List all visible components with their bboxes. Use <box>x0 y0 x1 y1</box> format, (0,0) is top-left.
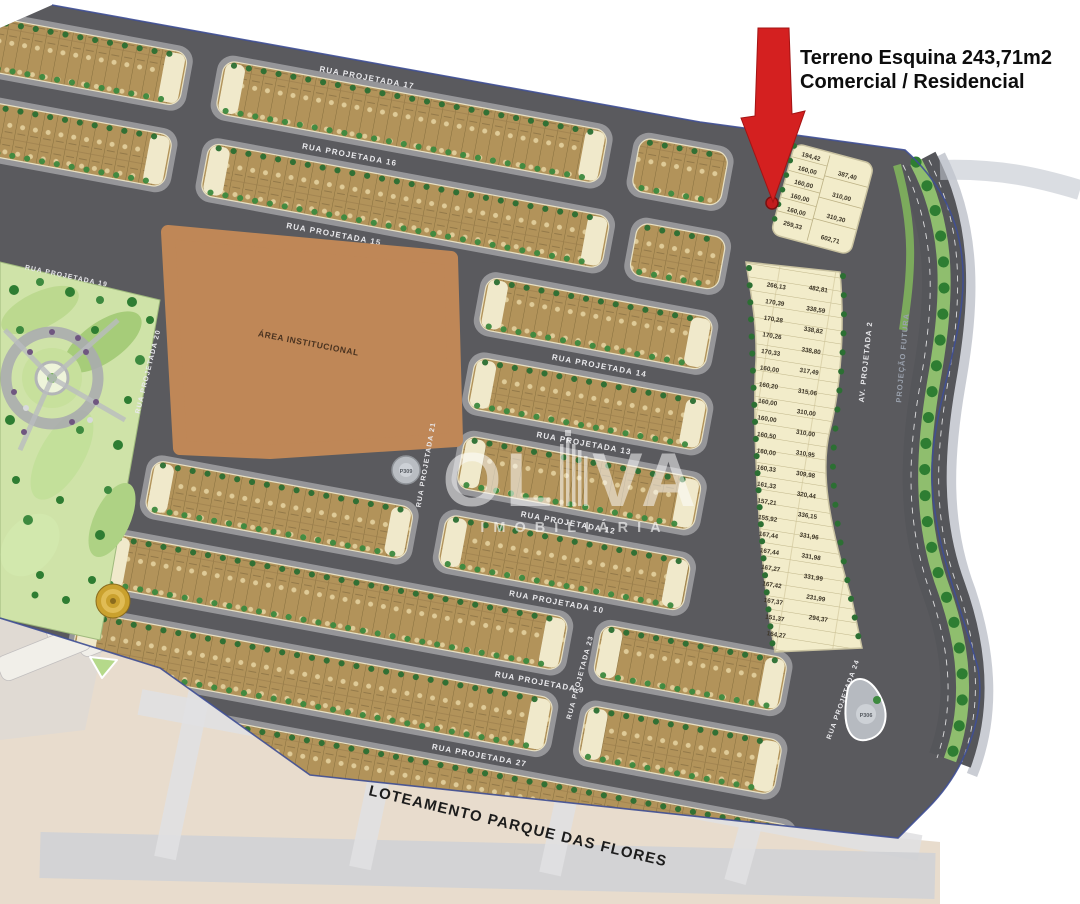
tree <box>56 496 64 504</box>
roundabout-p309-label: P309 <box>400 469 413 475</box>
tree <box>23 515 33 525</box>
tree <box>135 355 145 365</box>
tree <box>76 426 84 434</box>
annotation-line2: Comercial / Residencial <box>800 71 1025 93</box>
tree <box>5 415 15 425</box>
tree <box>93 399 99 405</box>
tree <box>36 278 44 286</box>
watermark-name-part2: VA <box>592 438 700 523</box>
tree <box>12 476 20 484</box>
tree <box>146 316 154 324</box>
tree <box>65 287 75 297</box>
tree <box>27 349 33 355</box>
roundabout-p306-label: P306 <box>860 713 873 719</box>
tree <box>127 297 137 307</box>
tree <box>21 429 27 435</box>
tree <box>88 576 96 584</box>
watermark-name-part1: OL <box>442 438 556 523</box>
tree <box>49 329 55 335</box>
tree <box>11 389 17 395</box>
annotation-line1: Terreno Esquina 243,71m2 <box>800 47 1052 69</box>
roundabout-golden <box>96 584 130 618</box>
tree <box>91 326 99 334</box>
tree <box>104 486 112 494</box>
tree <box>113 440 123 450</box>
subdivision-map: RUA PROJETADA 17 RUA PROJETADA 16 RUA PR… <box>0 0 1080 904</box>
tree <box>23 405 29 411</box>
subdivision-map-page: RUA PROJETADA 17 RUA PROJETADA 16 RUA PR… <box>0 0 1080 904</box>
tree <box>87 417 93 423</box>
tree <box>95 530 105 540</box>
tree <box>83 349 89 355</box>
tree <box>62 596 70 604</box>
road-stub-topright <box>940 170 1080 190</box>
watermark-subtitle: IMOBILIÁRIA <box>480 519 669 536</box>
roundabout-p309: P309 <box>392 456 420 484</box>
tree <box>16 326 24 334</box>
tree <box>124 396 132 404</box>
tree <box>69 419 75 425</box>
tree <box>96 296 104 304</box>
annotation: Terreno Esquina 243,71m2 Comercial / Res… <box>800 47 1052 93</box>
tree <box>9 285 19 295</box>
tree <box>36 571 44 579</box>
tree <box>75 335 81 341</box>
tree <box>32 592 39 599</box>
institutional-area: ÁREA INSTITUCIONAL <box>168 232 456 452</box>
